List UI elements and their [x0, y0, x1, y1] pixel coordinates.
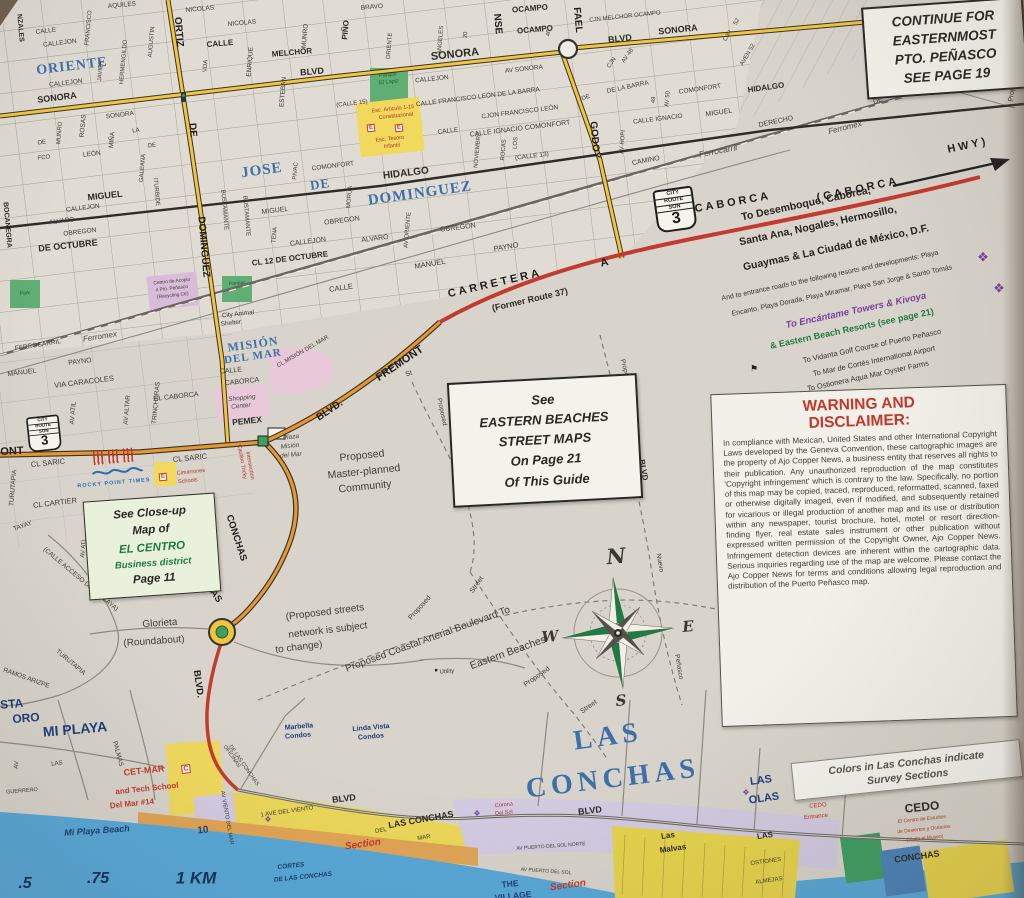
map-label: Proposed: [339, 448, 385, 463]
map-label: DE LA BARRA: [606, 80, 649, 95]
map-label: VILLAGE: [494, 890, 532, 898]
map-label: CALLE IGNACIO: [633, 114, 683, 127]
map-label: ORO: [12, 711, 40, 725]
map-label: DE: [37, 140, 46, 147]
route-shield-son3: CITY ROUTE SON 3: [652, 185, 698, 233]
map-label: ROCAS: [500, 139, 508, 161]
map-label: Mi Playa Beach: [64, 824, 130, 838]
map-label: ITURBIDE: [152, 178, 160, 206]
map-label: E: [682, 619, 695, 635]
map-label: (CALLE 15): [336, 99, 368, 109]
map-label: CALLEJON: [290, 236, 327, 247]
map-label: (Former Route 37): [491, 287, 569, 313]
map-label: El Lapiz: [379, 79, 399, 87]
map-label: CL SARIC: [173, 452, 208, 463]
map-label: OCAMPO: [512, 3, 549, 14]
map-photo: NZALESCALLECALLEJONORIENTECALLEJONSONORA…: [0, 0, 1024, 898]
map-label: Marbella: [285, 722, 314, 731]
map-label: THE: [501, 879, 519, 889]
map-label: BUSTAMANTE: [219, 190, 229, 231]
map-label: FRANCISCO: [84, 10, 93, 46]
map-label: DERECHO: [758, 115, 794, 129]
map-label: Section: [344, 838, 381, 853]
shield-number: 3: [657, 209, 695, 231]
map-label: PIÑO: [341, 20, 351, 40]
map-label: 46: [546, 29, 553, 36]
map-label: FAEL: [571, 7, 583, 33]
map-label: network is subject: [288, 621, 368, 641]
map-label: MANUEL: [7, 368, 37, 379]
shield-number: 3: [29, 433, 60, 450]
map-label: ROSAS: [80, 114, 88, 137]
map-label: CALLE: [220, 366, 243, 375]
map-label: PAYNO: [493, 241, 519, 253]
map-label: CORTES: [277, 862, 305, 871]
map-label: CONCHAS: [224, 514, 248, 563]
map-label: Utility: [439, 668, 454, 675]
map-label: Del Sol: [495, 810, 513, 817]
map-label: ENRIQUE: [246, 47, 255, 77]
map-label: del Mar: [280, 452, 302, 461]
map-label: GALEANA: [139, 154, 147, 183]
map-label: FERROCARRIL: [14, 339, 61, 353]
map-label: ORIENTE: [386, 32, 394, 59]
map-label: DE: [581, 94, 591, 102]
map-label: ❖: [993, 282, 1005, 295]
map-label: AV ALTAR: [123, 395, 132, 425]
map-label: VIA CARACOLES: [54, 375, 114, 390]
map-label: Entrance: [804, 813, 829, 821]
map-label: Parque: [229, 281, 246, 288]
map-label: W: [541, 629, 559, 645]
map-label: CALLE FRANCISCO LEÓN DE LA BARRA: [416, 87, 540, 109]
map-label: DE OCTUBRE: [38, 238, 98, 253]
warning-body: In compliance with Mexican, United State…: [723, 429, 1002, 592]
map-label: ONT: [0, 446, 24, 458]
map-label: Community: [338, 479, 392, 495]
map-label: ■: [434, 669, 437, 674]
map-label: CALLEJON: [49, 79, 83, 90]
map-label: E: [367, 124, 376, 133]
map-label: SONORA: [430, 47, 479, 63]
map-label: Ferromex: [82, 330, 117, 343]
map-label: PAYNO: [68, 357, 92, 367]
map-label: MI PLAYA: [42, 719, 107, 739]
map-label: MIGUEL: [705, 108, 733, 119]
map-label: AV PUERTO DEL SOL NORTE: [516, 842, 585, 852]
map-label: OBREGON: [324, 215, 360, 226]
map-label: NICOLAS: [227, 20, 256, 29]
map-label: (CALLE 13): [515, 152, 550, 163]
map-label: ❖: [264, 816, 271, 824]
map-label: FCO: [37, 154, 50, 161]
map-label: MIGUEL: [261, 206, 288, 216]
continue-note-box: CONTINUE FOR EASTERNMOST PTO. PEÑASCO SE…: [861, 0, 1024, 99]
map-label: DE: [147, 143, 156, 150]
map-label: ORTIZ: [172, 17, 185, 48]
map-label: Plaza: [283, 434, 300, 442]
map-label: HIDALGO: [383, 166, 430, 182]
map-label: 52: [733, 18, 742, 27]
map-label: Linda Vista: [352, 723, 390, 733]
map-label: BUSTAMANTE: [241, 196, 251, 237]
map-label: (Proposed streets: [285, 603, 365, 623]
map-label: CL SARIC: [31, 457, 66, 468]
map-label: PEMEX: [232, 415, 262, 427]
map-label: BOCANEGRA: [2, 202, 13, 248]
map-label: ALMEJAS: [755, 876, 783, 886]
warning-disclaimer-box: WARNING AND DISCLAIMER: In compliance wi…: [710, 384, 1017, 727]
map-label: BRAVO: [361, 4, 384, 12]
map-label: CONCHAS: [894, 849, 940, 864]
map-label: AUGUSTIN: [148, 26, 157, 57]
el-centro-note-box: See Close-up Map of EL CENTRO Business d…: [83, 493, 222, 601]
map-label: Eastern Beaches: [469, 634, 548, 671]
map-label: DOMINGUEZ: [367, 179, 473, 208]
map-label: HIDALGO: [747, 81, 785, 94]
map-label: Glorieta: [142, 618, 178, 630]
map-label: Nuevo: [654, 553, 664, 573]
map-label: BLVD.: [191, 670, 204, 699]
map-label: N: [606, 545, 627, 568]
map-label: TURUTAPIA: [9, 470, 19, 507]
map-label: OBREGON: [440, 222, 476, 233]
eastern-beaches-note-box: See EASTERN BEACHES STREET MAPS On Page …: [447, 373, 643, 507]
map-label: CJN: [722, 29, 733, 42]
map-label: HWY): [947, 136, 990, 155]
traffic-signal-icon: [181, 92, 186, 102]
map-label: MUNRO: [56, 121, 64, 144]
map-label: CALLE: [206, 39, 233, 49]
map-label: BLVD: [300, 66, 325, 77]
map-label: Ferromex: [827, 120, 862, 136]
rocky-point-times-logo: [89, 447, 148, 484]
map-label: Condos: [285, 731, 312, 740]
map-label: Malvas: [659, 843, 687, 855]
route-shield-son3: CITY ROUTE SON 3: [26, 414, 62, 453]
map-label: (Recycling Ctr): [157, 293, 189, 301]
map-label: MAR: [417, 834, 431, 842]
map-label: (Visite el Museo): [906, 835, 943, 844]
map-label: PIVAC: [292, 162, 300, 180]
map-label: DE: [186, 123, 197, 138]
map-label: to change): [275, 640, 323, 656]
map-label: MELCHOR: [272, 47, 313, 58]
map-label: 20: [463, 31, 470, 38]
map-label: CALLEJON: [66, 204, 100, 215]
map-label: AV 48: [621, 48, 635, 64]
map-label: .75: [87, 871, 109, 887]
map-label: Constitucional: [379, 112, 414, 121]
map-label: CL 12 DE OCTUBRE: [251, 250, 328, 267]
map-label: SONORA: [37, 91, 77, 105]
map-label: OBREGON: [63, 228, 97, 239]
map-label: ESTEBAN: [279, 77, 288, 108]
map-label: BLVD: [608, 33, 633, 44]
map-label: .5: [18, 876, 31, 892]
map-label: E: [159, 473, 168, 482]
map-label: JOSE: [240, 161, 283, 182]
map-label: COMONFORT: [312, 161, 355, 173]
map-label: ALVARO: [361, 234, 389, 244]
map-label: Proposed: [407, 595, 432, 622]
map-label: CJN MELCHOR OCAMPO: [589, 10, 661, 23]
map-label: LOS: [512, 137, 519, 149]
map-label: BLVD: [578, 805, 603, 816]
map-label: Park: [20, 291, 31, 297]
map-label: LAS: [51, 760, 63, 767]
map-label: Center: [231, 403, 251, 412]
map-label: LAS: [572, 718, 645, 755]
map-label: Proposed: [435, 398, 447, 427]
map-label: CJON FRANCISCO LEÓN: [481, 105, 559, 121]
map-label: ❖: [473, 810, 480, 818]
map-label: DE LAS CONCHAS: [227, 745, 259, 788]
map-label: LAS: [757, 831, 774, 841]
map-label: SONORA: [106, 111, 135, 121]
map-label: CABORCA: [224, 377, 259, 388]
map-label: Street: [469, 575, 485, 594]
map-label: MORUA: [346, 186, 354, 209]
map-label: CONCHAS: [524, 754, 701, 803]
map-label: TURUTAPIA: [54, 649, 86, 677]
logo-wave-icon: [90, 462, 145, 479]
map-label: JAVIER: [97, 60, 105, 81]
map-label: TENA: [271, 227, 278, 243]
map-label: Ferrocarril: [698, 143, 738, 159]
photo-corner-shadow: [0, 0, 18, 26]
map-label: LEÓN: [83, 151, 101, 160]
map-label: MUNRO: [302, 23, 311, 48]
map-label: CALLE: [437, 128, 458, 137]
map-label: ISTA: [0, 697, 24, 711]
map-label: DEL: [375, 827, 388, 835]
map-label: CEDO: [809, 802, 827, 810]
map-label: C: [181, 764, 191, 774]
map-label: AQUILES: [108, 2, 137, 11]
map-label: AV ORIENTE: [403, 212, 412, 248]
map-label: GODOY: [587, 121, 600, 159]
map-label: NICOLAS: [185, 6, 214, 15]
map-label: PALMAS: [111, 741, 124, 768]
map-label: (Roundabout): [123, 635, 185, 649]
map-label: LA: [132, 128, 140, 135]
map-label: CALLE: [35, 28, 56, 37]
map-label: Section: [549, 879, 586, 894]
map-label: Condos: [358, 732, 385, 741]
map-label: CALLE IGNACIO COMONFORT: [469, 119, 570, 138]
map-label: CALLE: [329, 283, 354, 294]
map-label: 1 KM: [176, 870, 217, 887]
map-label: AV 50: [664, 91, 671, 107]
map-label: Las: [661, 831, 676, 841]
map-label: DOMINGUEZ: [195, 216, 210, 278]
map-label: Infantil: [384, 143, 401, 150]
map-label: AV ATIL: [70, 401, 78, 424]
map-label: Peñasco: [673, 654, 684, 680]
map-label: Del Mar #14: [109, 798, 154, 811]
map-label: CALLEJON: [43, 39, 77, 50]
map-label: MANUEL: [414, 258, 446, 271]
map-label: 10: [197, 826, 209, 837]
map-label: A: [599, 256, 612, 269]
map-label: AV PUERTO DEL SOL: [521, 868, 572, 877]
map-label: CJN: [606, 56, 618, 69]
map-label: ⚑: [750, 365, 758, 374]
map-label: Schools: [178, 478, 198, 486]
map-label: VDA: [202, 60, 209, 73]
map-label: Proposed: [523, 666, 552, 689]
map-label: GUERRERO: [6, 788, 38, 796]
map-label: ALVARO: [49, 217, 75, 227]
map-label: CET-MAR: [123, 764, 165, 777]
map-label: and Tech School: [115, 782, 179, 797]
map-label: Misión: [280, 443, 299, 451]
map-label: TAYAY: [13, 521, 33, 534]
map-label: MIÑA: [109, 132, 117, 149]
map-label: AV HOPI: [619, 130, 627, 154]
map-label: MIGUEL: [87, 190, 123, 203]
map-label: OSTIONES: [750, 857, 782, 867]
map-label: Cimarrones: [177, 469, 206, 477]
map-label: BLVD.: [315, 399, 345, 424]
map-label: LAS: [749, 774, 772, 788]
map-label: CEDO: [904, 799, 940, 815]
map-label: ❖: [977, 251, 989, 264]
map-label: DE: [309, 176, 331, 192]
map-label: 49: [651, 96, 658, 103]
map-label: Shelter: [220, 320, 241, 329]
map-label: SONORA: [658, 23, 698, 36]
map-label: BLVD: [332, 793, 357, 805]
map-label: AVEN 52: [739, 43, 756, 67]
map-label: NSE: [491, 13, 503, 34]
map-label: COMONFORT: [679, 84, 722, 96]
map-label: LAS CONCHAS: [388, 810, 455, 830]
map-label: CALLEJON: [415, 75, 449, 85]
map-label: TRINCHERAS: [152, 382, 162, 425]
map-label: ❖: [742, 789, 749, 797]
map-label: S: [615, 693, 627, 709]
map-label: AV VIENTO DEL MAR: [219, 791, 234, 846]
map-label: HERMENGILDO: [119, 39, 129, 84]
map-label: CL MISIÓN DEL MAR: [276, 335, 330, 369]
map-label: El Centro de Estudios: [898, 815, 947, 825]
map-label: DE LAS CONCHAS: [274, 872, 333, 885]
map-label: OLAS: [748, 791, 780, 806]
map-label: RAMOS ARIZPE: [2, 668, 50, 691]
map-label: CAMINO: [632, 155, 661, 167]
map-label: Street: [579, 699, 598, 715]
map-label: St: [405, 370, 414, 379]
map-label: AV: [14, 761, 21, 769]
map-label: CL CARTIER: [33, 497, 78, 510]
map-label: E: [395, 124, 404, 133]
map-label: FREMONT: [374, 344, 425, 384]
map-label: AV SONORA: [505, 65, 544, 75]
